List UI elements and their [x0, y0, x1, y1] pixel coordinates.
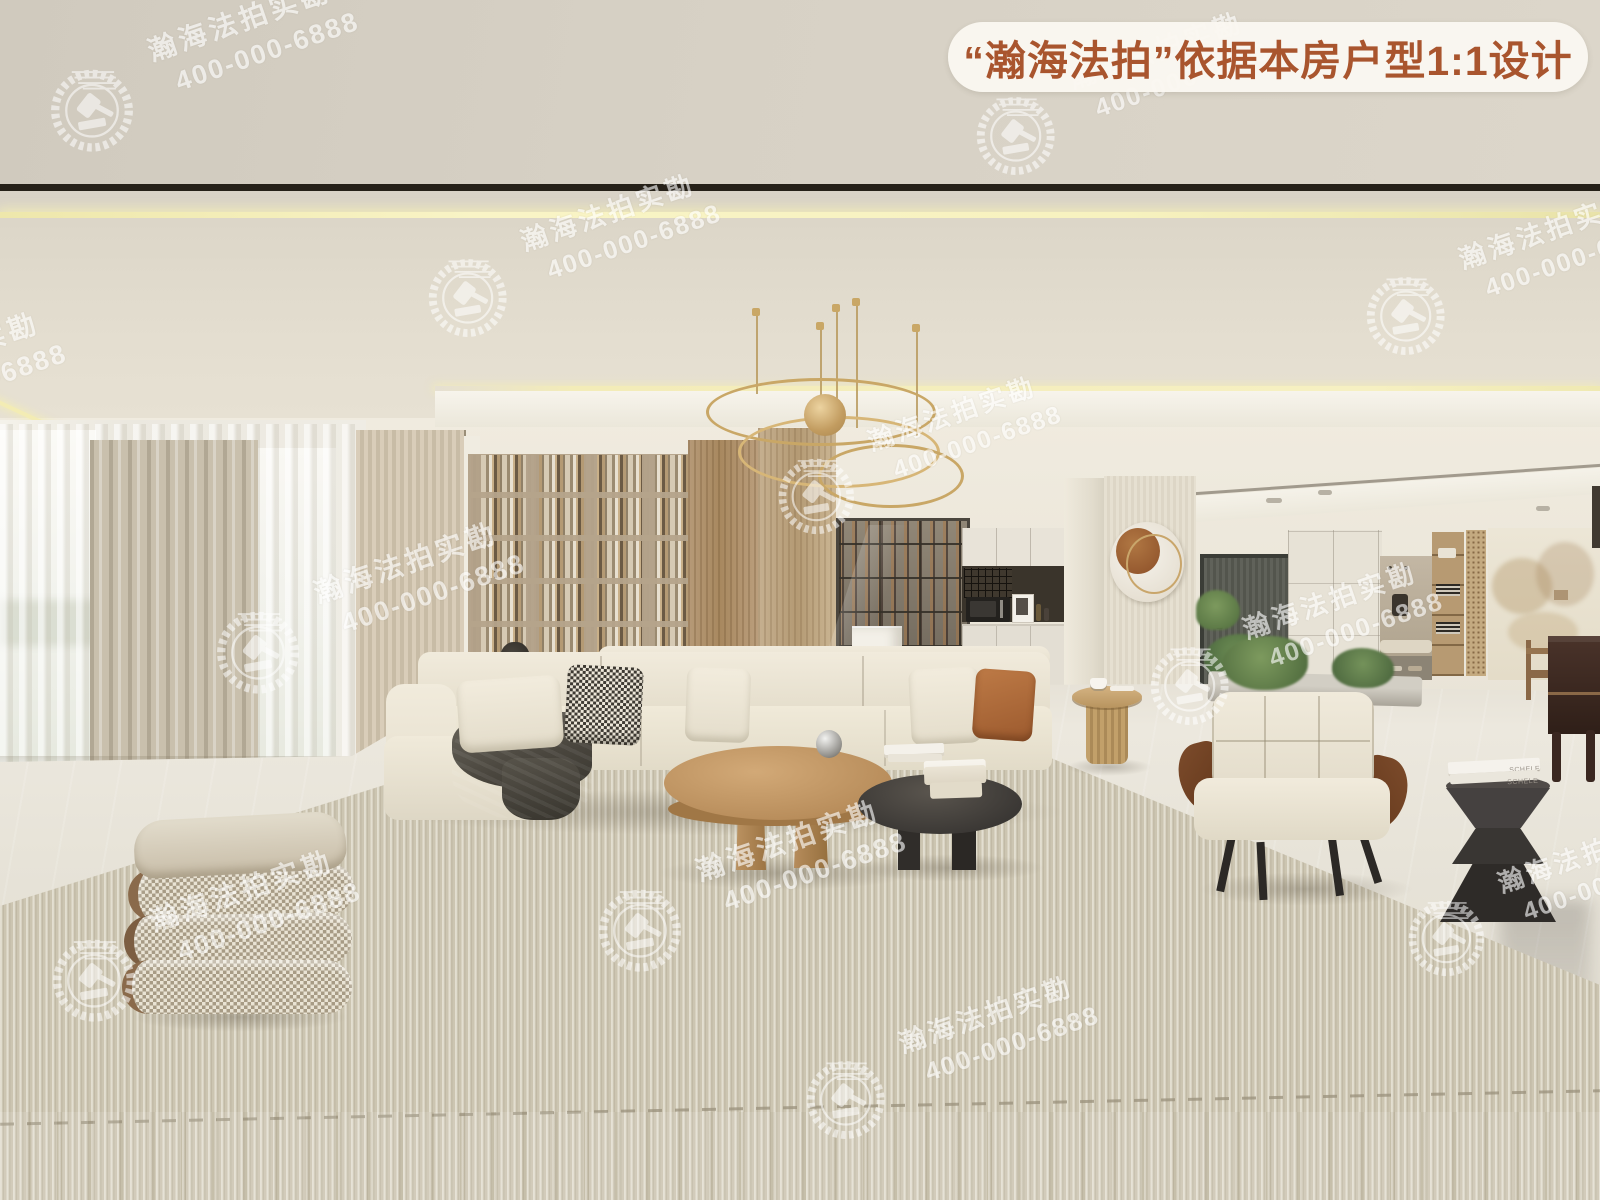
- pillow-cream: [456, 674, 565, 753]
- chandelier-wire: [756, 316, 758, 394]
- wall-art-gold-ring: [1126, 534, 1182, 594]
- coffee-table-wood: [664, 746, 892, 820]
- spotlight: [1266, 498, 1282, 503]
- black-table-shadow: [856, 854, 1046, 882]
- spotlight: [1318, 490, 1332, 495]
- armchair-seat: [1194, 778, 1390, 840]
- bottle: [1036, 604, 1041, 621]
- hook: [1388, 566, 1392, 570]
- armchair-shadow: [1198, 872, 1414, 906]
- stool-top-texture: [133, 810, 348, 879]
- armchair-quilt-seam: [1216, 740, 1370, 742]
- banner-label: “瀚海法拍”依据本房户型1:1设计: [963, 27, 1572, 87]
- shelf-object: [1438, 548, 1456, 558]
- chandelier-cap: [816, 322, 824, 330]
- piano-trim: [1548, 692, 1600, 695]
- living-room-photo: SCHELE SCHELE 瀚海法拍实勘 400-00: [0, 0, 1600, 1200]
- chandelier-cap: [852, 298, 860, 306]
- book-small-stack: [1110, 686, 1134, 691]
- piano-leg: [1586, 730, 1595, 782]
- bookshelf-partition: [468, 454, 696, 670]
- piano-leg: [1552, 732, 1561, 782]
- kitchen-upper-cabinets: [962, 528, 1066, 566]
- sofa-seam: [884, 710, 886, 766]
- microwave-window: [970, 601, 996, 617]
- chandelier-ring: [818, 444, 964, 508]
- shoes: [1408, 666, 1422, 671]
- banner-pill: “瀚海法拍”依据本房户型1:1设计: [948, 22, 1588, 92]
- chandelier-cap: [752, 308, 760, 316]
- door-plant: [1196, 590, 1240, 630]
- pillow-cream: [908, 666, 982, 746]
- pillow-rust: [972, 668, 1037, 742]
- decor-box: [930, 781, 983, 799]
- coat-niche: [1380, 556, 1432, 656]
- armchair-back: [1212, 692, 1374, 792]
- back-cove-white: [435, 391, 1600, 427]
- silver-vase: [816, 730, 842, 758]
- pillow-houndstooth: [564, 664, 644, 746]
- wood-lattice-screen: [1466, 530, 1486, 676]
- hook: [1404, 566, 1408, 570]
- microwave: [966, 597, 1010, 622]
- chandelier-sphere: [804, 394, 846, 436]
- wine-rack-grid: [964, 568, 1012, 598]
- stool-layer: [122, 960, 352, 1014]
- piano-body: [1548, 636, 1600, 734]
- planter-greenery: [1332, 648, 1394, 688]
- mural-pavilion: [1554, 590, 1568, 600]
- photo-frame: [1012, 594, 1034, 623]
- ceiling-band: [0, 191, 1600, 212]
- chandelier-cap: [912, 324, 920, 332]
- open-shelf-unit: [1432, 532, 1464, 676]
- spotlight: [1536, 506, 1550, 511]
- rug-band-texture: [0, 1112, 1600, 1200]
- ceiling-dark-slot: [0, 184, 1600, 191]
- photo: [1016, 598, 1028, 615]
- sofa-seam: [862, 656, 864, 710]
- curtain-folds: [90, 440, 258, 766]
- file-box: [1436, 584, 1460, 596]
- pillow-cream: [685, 667, 752, 743]
- bottle: [1044, 608, 1049, 621]
- dark-edge: [1592, 486, 1600, 548]
- microwave-handle: [1000, 600, 1003, 618]
- chandelier-cap: [832, 304, 840, 312]
- planter-greenery: [1222, 636, 1308, 690]
- file-box: [1436, 622, 1460, 634]
- coffee-cup: [1090, 678, 1107, 689]
- hanging-bag: [1392, 594, 1408, 616]
- bench-cushion: [1380, 640, 1432, 653]
